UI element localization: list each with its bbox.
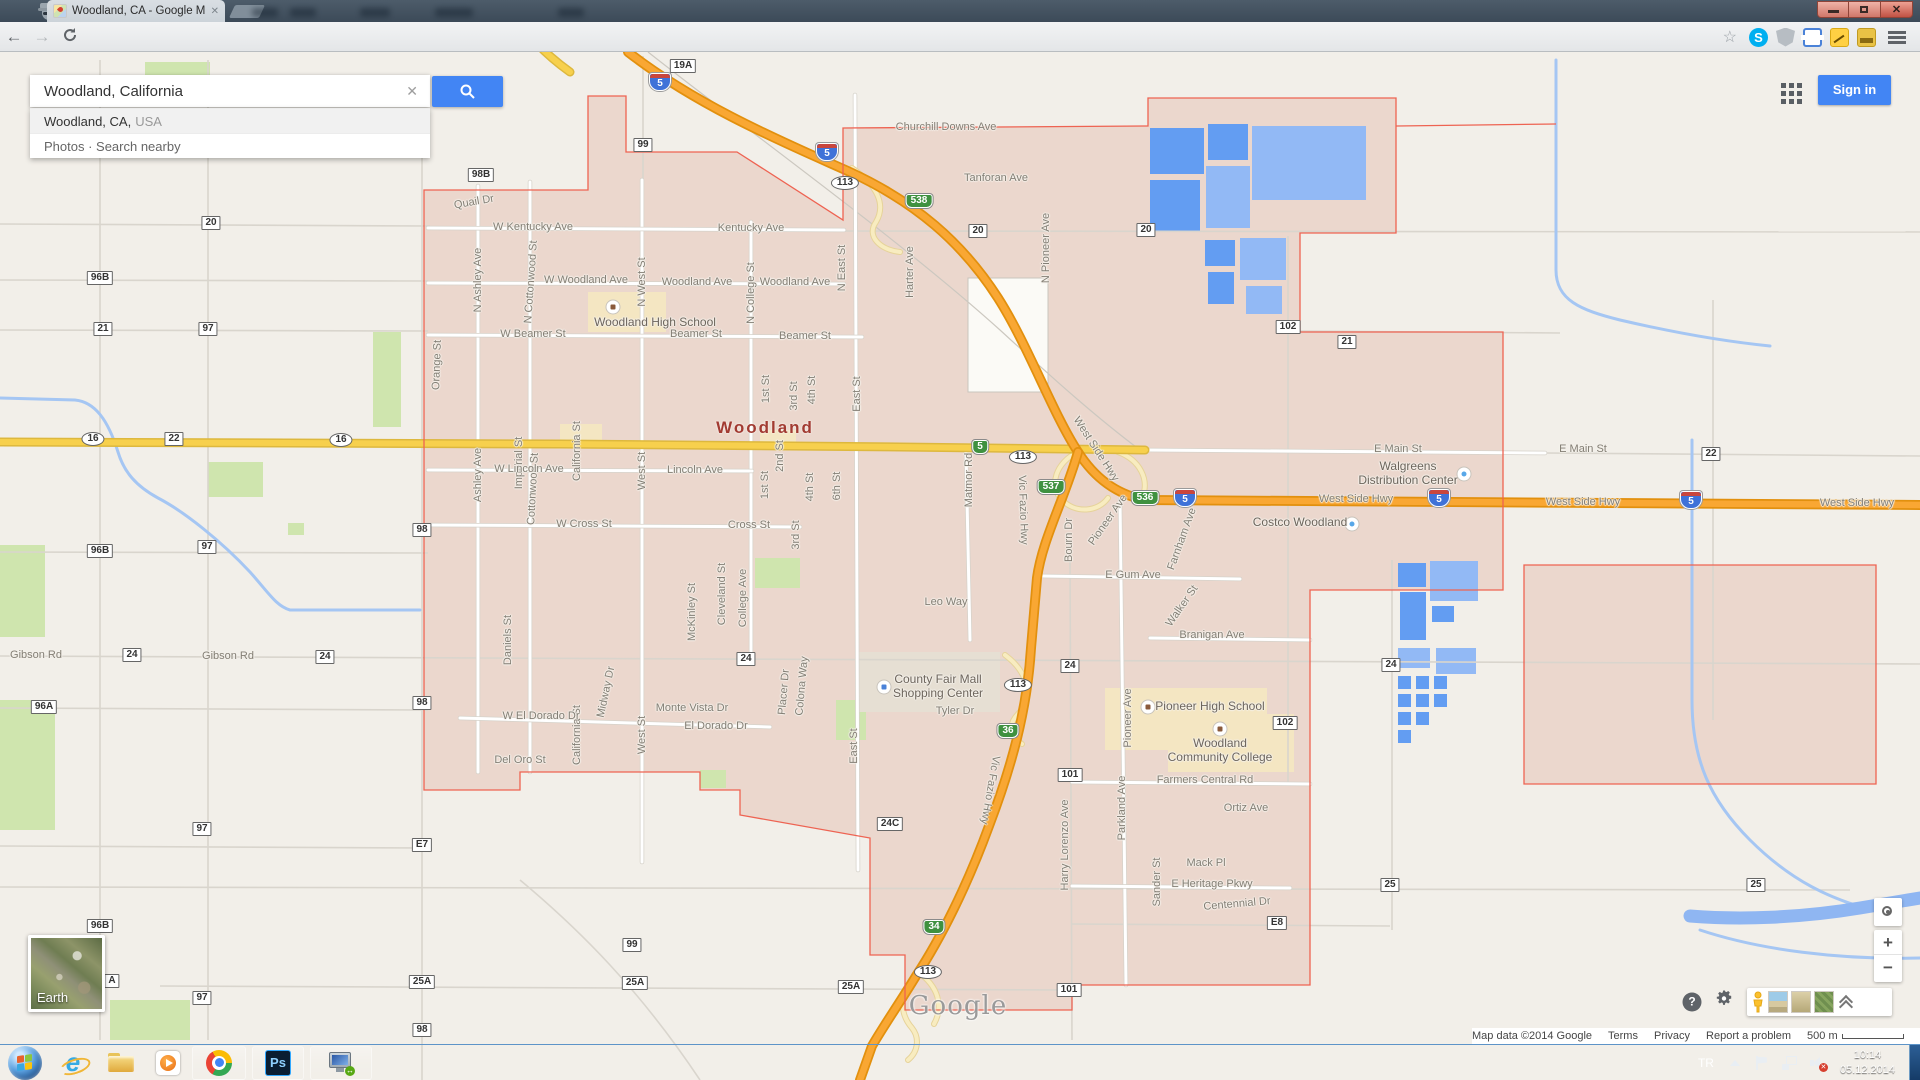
route-shield: A (104, 974, 119, 988)
google-apps-grid-icon[interactable] (1781, 83, 1804, 106)
desktop: Churchill Downs AveTanforan AveN Pioneer… (0, 0, 1920, 1080)
route-shield: 36 (997, 724, 1018, 738)
street-label: Del Oro St (494, 754, 545, 766)
menu-ghost-artifact (435, 8, 473, 17)
street-label: N West St (636, 257, 648, 306)
route-shield: 96B (87, 544, 113, 558)
remote-desktop-icon: ↔ (327, 1050, 355, 1076)
route-shield: 20 (1136, 223, 1155, 237)
street-label: Sander St (1151, 858, 1163, 907)
street-label: West Side Hwy (1071, 415, 1122, 484)
chrome-taskbar-button[interactable] (192, 1046, 246, 1080)
close-button[interactable]: ✕ (1881, 1, 1913, 18)
photoshop-taskbar-button[interactable]: Ps (252, 1046, 304, 1080)
route-shield: 25A (622, 976, 648, 990)
poi-label[interactable]: Costco Woodland (1253, 516, 1348, 530)
show-desktop-button[interactable] (1909, 1045, 1920, 1080)
route-shield: E8 (1267, 916, 1287, 930)
street-label: Centennial Dr (1203, 895, 1271, 913)
volume-muted-icon[interactable]: ✕ (1810, 1056, 1826, 1070)
street-label: W Cross St (556, 518, 612, 530)
street-label: N East St (836, 245, 848, 291)
route-shield: 5 (649, 73, 671, 91)
route-shield: 22 (164, 432, 183, 446)
menu-ghost-artifact (360, 8, 390, 17)
street-label: West Side Hwy (1319, 493, 1393, 505)
street-label: McKinley St (686, 583, 698, 641)
route-shield: 98 (412, 696, 431, 710)
clear-search-icon[interactable]: ✕ (406, 83, 418, 100)
route-shield: 5 (972, 440, 988, 454)
imagery-thumbnail[interactable] (1768, 991, 1788, 1013)
route-shield: 21 (93, 322, 112, 336)
poi-icon[interactable] (877, 680, 892, 695)
suggestion-photos-search-nearby[interactable]: Photos · Search nearby (30, 133, 430, 158)
route-shield: 97 (192, 822, 211, 836)
street-label: Harry Lorenzo Ave (1059, 800, 1071, 891)
street-label: Ashley Ave (472, 448, 484, 502)
route-shield: 24 (122, 648, 141, 662)
street-label: 1st St (760, 375, 772, 403)
remote-desktop-taskbar-button[interactable]: ↔ (310, 1046, 372, 1080)
route-shield: 113 (1004, 678, 1032, 692)
terms-link[interactable]: Terms (1608, 1030, 1638, 1042)
street-label: 4th St (804, 473, 816, 502)
network-icon[interactable] (1782, 1056, 1798, 1070)
street-label: Woodland Ave (760, 276, 831, 288)
street-label: 2nd St (774, 440, 786, 472)
route-shield: 24C (877, 817, 903, 831)
route-shield: 25 (1380, 878, 1399, 892)
menu-ghost-artifact (290, 8, 316, 17)
street-label: Quail Dr (453, 193, 495, 212)
route-shield: E7 (412, 838, 432, 852)
street-label: E Main St (1374, 443, 1422, 455)
route-shield: 97 (197, 540, 216, 554)
street-label: W Kentucky Ave (493, 221, 573, 233)
street-label: Matmor Rd (963, 453, 975, 507)
browser-titlebar (0, 0, 1920, 22)
minimize-button[interactable] (1817, 1, 1849, 18)
street-label: Monte Vista Dr (656, 702, 729, 714)
language-indicator[interactable]: TR (1698, 1056, 1714, 1070)
route-shield: 98B (468, 168, 494, 182)
street-label: 4th St (806, 376, 818, 405)
street-label: Placer Dr (776, 669, 792, 716)
bookmark-star-icon[interactable]: ☆ (1723, 27, 1737, 47)
street-label: College Ave (737, 569, 749, 628)
street-label: California St (571, 421, 583, 481)
street-label: E Gum Ave (1105, 569, 1160, 581)
zoom-in-button[interactable]: + (1874, 930, 1902, 955)
route-shield: 24 (1060, 659, 1079, 673)
street-label: Ortiz Ave (1224, 802, 1268, 814)
photoshop-icon: Ps (265, 1050, 291, 1076)
route-shield: 99 (633, 138, 652, 152)
settings-gear-icon[interactable] (1714, 989, 1734, 1014)
route-shield: 25A (409, 975, 435, 989)
street-label: East St (851, 376, 863, 411)
street-label: Tanforan Ave (964, 172, 1028, 184)
zoom-control: + − (1874, 930, 1902, 982)
hidden-icons-caret[interactable] (1730, 1060, 1740, 1066)
street-label: Cleveland St (716, 563, 728, 625)
menu-ghost-artifact (252, 8, 278, 17)
street-label: West St (636, 716, 648, 754)
route-shield: 96B (87, 919, 113, 933)
poi-label[interactable]: Woodland Community College (1168, 737, 1273, 765)
route-shield: 102 (1273, 716, 1298, 730)
poi-icon[interactable] (1457, 467, 1472, 482)
collapse-chevron-icon[interactable] (1840, 996, 1852, 1008)
route-shield: 98 (412, 1023, 431, 1037)
street-label: Beamer St (779, 330, 831, 342)
pegman-icon[interactable] (1751, 991, 1765, 1013)
street-label: 3rd St (790, 520, 802, 549)
imagery-thumbnail[interactable] (1814, 991, 1834, 1013)
street-label: Farnham Ave (1165, 506, 1199, 571)
window-controls: ✕ (1817, 1, 1913, 18)
street-label: Woodland Ave (662, 276, 733, 288)
route-shield: 536 (1132, 491, 1159, 505)
route-shield: 96B (87, 271, 113, 285)
route-shield: 97 (192, 991, 211, 1005)
back-button[interactable]: ← (0, 27, 28, 47)
tray-date: 05.12.2014 (1840, 1064, 1895, 1076)
street-label: 3rd St (788, 381, 800, 410)
map-label-layer: Churchill Downs AveTanforan AveN Pioneer… (0, 0, 1920, 1080)
route-shield: 25A (838, 980, 864, 994)
search-box[interactable]: Woodland, California ✕ (30, 75, 430, 107)
zoom-out-button[interactable]: − (1874, 955, 1902, 980)
street-label: E Main St (1559, 443, 1607, 455)
poi-icon[interactable] (1213, 722, 1228, 737)
street-label: Vic Fazio Hwy (978, 755, 1002, 826)
route-shield: 113 (831, 176, 859, 190)
browser-tab[interactable]: Woodland, CA - Google M ✕ (47, 0, 225, 22)
street-label: N Cottonwood St (522, 240, 540, 324)
street-label: Mack Pl (1186, 857, 1225, 869)
street-label: Leo Way (924, 596, 967, 608)
street-label: East St (848, 728, 860, 763)
street-label: Kentucky Ave (718, 222, 784, 234)
search-suggestions: Woodland, CA, USA Photos · Search nearby (30, 108, 430, 158)
street-label: Bourn Dr (1063, 518, 1075, 562)
street-label: Gibson Rd (202, 650, 254, 662)
browser-navbar: ← → (0, 22, 1920, 52)
route-shield: 113 (1009, 450, 1037, 464)
restore-button[interactable] (1849, 1, 1881, 18)
street-label: N Ashley Ave (472, 248, 484, 313)
street-label: Gibson Rd (10, 649, 62, 661)
tray-time: 10:14 (1854, 1049, 1882, 1061)
imagery-bar (1747, 988, 1892, 1016)
route-shield: 24 (315, 650, 334, 664)
earth-view-toggle[interactable]: Earth (28, 935, 105, 1012)
map-data-credit: Map data ©2014 Google (1472, 1030, 1592, 1042)
street-label: N College St (745, 262, 757, 324)
poi-label[interactable]: Walgreens Distribution Center (1358, 460, 1457, 488)
street-label: Harter Ave (904, 246, 916, 298)
menu-ghost-artifact (558, 8, 584, 17)
route-shield: 5 (1428, 489, 1450, 507)
city-label: Woodland (716, 418, 814, 438)
help-button[interactable]: ? (1683, 993, 1702, 1012)
route-shield: 97 (198, 322, 217, 336)
internet-explorer-icon[interactable]: e (56, 1047, 90, 1079)
route-shield: 24 (736, 652, 755, 666)
search-icon (459, 83, 476, 100)
scale-bar (1842, 1034, 1904, 1039)
route-shield: 20 (201, 216, 220, 230)
street-label: Farmers Central Rd (1157, 774, 1254, 786)
start-button[interactable] (8, 1046, 42, 1080)
my-location-button[interactable] (1874, 898, 1902, 926)
street-label: W Lincoln Ave (494, 463, 564, 475)
scale-label: 500 m (1807, 1030, 1838, 1042)
route-shield: 21 (1337, 335, 1356, 349)
route-shield: 98 (412, 523, 431, 537)
taskbar-clock[interactable]: 10:14 05.12.2014 (1840, 1048, 1895, 1078)
route-shield: 538 (906, 194, 933, 208)
poi-icon[interactable] (606, 300, 621, 315)
street-label: Parkland Ave (1116, 776, 1128, 841)
earth-label: Earth (37, 990, 68, 1005)
street-label: Pioneer Ave (1086, 492, 1130, 547)
route-shield: 22 (1701, 447, 1720, 461)
route-shield: 24 (1381, 658, 1400, 672)
tab-close-icon[interactable]: ✕ (211, 6, 219, 17)
search-input[interactable]: Woodland, California (44, 83, 406, 100)
street-label: Vic Fazio Hwy (1016, 475, 1030, 545)
windows-explorer-icon[interactable] (104, 1047, 138, 1079)
street-label: Churchill Downs Ave (896, 121, 997, 133)
route-shield: 5 (1680, 491, 1702, 509)
street-label: W El Dorado Dr (502, 710, 579, 722)
route-shield: 101 (1057, 983, 1082, 997)
route-shield: 102 (1276, 320, 1301, 334)
street-label: N Pioneer Ave (1040, 213, 1052, 283)
media-player-icon[interactable] (152, 1047, 186, 1079)
tab-title: Woodland, CA - Google M (72, 5, 207, 17)
shield-extension-icon[interactable] (1776, 28, 1795, 47)
route-shield: 16 (329, 433, 352, 447)
route-shield: 16 (81, 432, 104, 446)
sign-in-button[interactable]: Sign in (1818, 75, 1891, 105)
attribution-bar: Map data ©2014 Google Terms Privacy Repo… (1472, 1028, 1920, 1044)
route-shield: 5 (1174, 489, 1196, 507)
street-label: Lincoln Ave (667, 464, 723, 476)
poi-icon[interactable] (1141, 700, 1156, 715)
chrome-menu-icon[interactable] (1888, 31, 1906, 44)
chrome-icon (206, 1050, 232, 1076)
street-label: Orange St (430, 340, 444, 391)
street-label: Colona Way (793, 656, 810, 716)
poi-label[interactable]: Woodland High School (594, 316, 716, 330)
street-label: Tyler Dr (936, 705, 975, 717)
route-shield: 5 (816, 143, 838, 161)
forward-button[interactable]: → (28, 27, 56, 47)
street-label: Daniels St (502, 615, 514, 665)
privacy-link[interactable]: Privacy (1654, 1030, 1690, 1042)
street-label: Midway Dr (595, 665, 618, 718)
poi-label[interactable]: County Fair Mall Shopping Center (893, 673, 983, 701)
route-shield: 113 (914, 965, 942, 979)
route-shield: 96A (31, 700, 57, 714)
suggestion-woodland-ca[interactable]: Woodland, CA, USA (30, 108, 430, 133)
street-label: West Side Hwy (1546, 496, 1620, 508)
poi-label[interactable]: Pioneer High School (1155, 700, 1264, 714)
street-label: E Heritage Pkwy (1171, 878, 1252, 890)
street-label: 6th St (831, 472, 843, 501)
google-maps-favicon (53, 4, 67, 18)
google-watermark: Google (909, 991, 1007, 1021)
route-shield: 537 (1038, 480, 1065, 494)
route-shield: 34 (923, 920, 944, 934)
street-label: Cross St (728, 519, 770, 531)
route-shield: 20 (968, 224, 987, 238)
street-label: Branigan Ave (1179, 629, 1244, 641)
skype-extension-icon[interactable]: S (1749, 28, 1768, 47)
windows-taskbar: e Ps ↔ TR ✕ 10:14 05.12.2014 (0, 1044, 1920, 1080)
action-center-flag-icon[interactable] (1756, 1056, 1768, 1070)
street-label: Pioneer Ave (1122, 688, 1134, 747)
system-tray: TR ✕ 10:14 05.12.2014 (1698, 1045, 1920, 1080)
imagery-thumbnail[interactable] (1791, 991, 1811, 1013)
street-label: 1st St (759, 471, 771, 499)
ruler-extension-icon[interactable] (1857, 28, 1876, 47)
street-label: West St (636, 452, 648, 490)
screenshot-extension-icon[interactable] (1803, 28, 1822, 47)
street-label: West Side Hwy (1820, 497, 1894, 509)
route-shield: 99 (622, 938, 641, 952)
chart-extension-icon[interactable] (1830, 28, 1849, 47)
reload-button[interactable] (56, 27, 84, 47)
street-label: W Beamer St (500, 328, 565, 340)
report-problem-link[interactable]: Report a problem (1706, 1030, 1791, 1042)
route-shield: 19A (670, 59, 696, 73)
route-shield: 101 (1058, 768, 1083, 782)
street-label: Walker St (1164, 583, 1201, 629)
search-button[interactable] (432, 76, 503, 107)
street-label: El Dorado Dr (684, 720, 748, 732)
route-shield: 25 (1746, 878, 1765, 892)
navbar-right: ☆ S (1715, 22, 1920, 52)
street-label: W Woodland Ave (544, 274, 628, 286)
